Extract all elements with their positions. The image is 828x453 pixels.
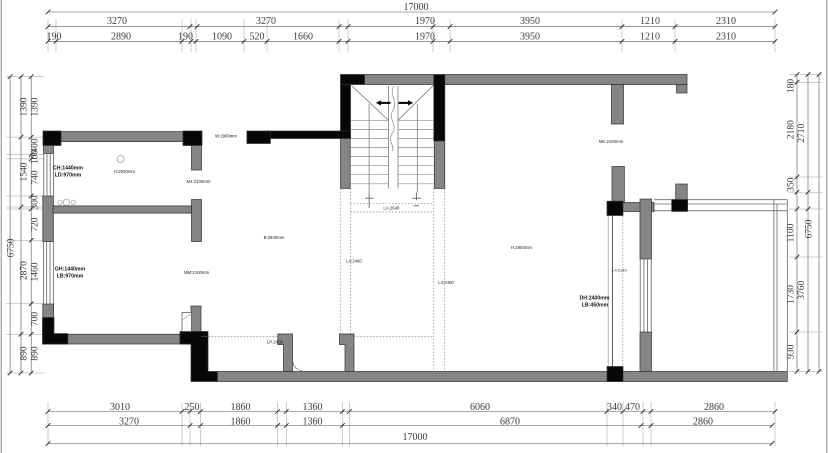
svg-text:1390: 1390 — [31, 97, 41, 116]
svg-text:1210: 1210 — [640, 32, 660, 43]
svg-text:L4:2140: L4:2140 — [612, 268, 627, 273]
svg-text:GH:1440mm: GH:1440mm — [55, 267, 86, 273]
svg-text:17000: 17000 — [403, 432, 428, 443]
svg-text:6870: 6870 — [500, 417, 520, 428]
svg-text:W:2900mm: W:2900mm — [215, 134, 237, 139]
svg-text:190: 190 — [47, 32, 62, 43]
svg-text:3950: 3950 — [520, 16, 540, 27]
svg-text:1360: 1360 — [303, 417, 323, 428]
svg-text:LB:970mm: LB:970mm — [57, 274, 84, 280]
svg-text:3270: 3270 — [107, 16, 127, 27]
svg-text:H:2800mm: H:2800mm — [511, 245, 532, 250]
svg-text:LD:970mm: LD:970mm — [55, 173, 82, 179]
svg-text:6750: 6750 — [805, 219, 815, 238]
svg-text:3270: 3270 — [119, 417, 139, 428]
svg-text:6750: 6750 — [7, 238, 17, 257]
svg-text:930: 930 — [787, 344, 797, 359]
svg-text:250: 250 — [185, 402, 200, 413]
svg-text:2870: 2870 — [20, 261, 30, 280]
svg-text:LA:2640: LA:2640 — [383, 206, 400, 211]
svg-text:DH:2400mm: DH:2400mm — [580, 296, 610, 302]
svg-text:L4:2460: L4:2460 — [346, 259, 362, 264]
svg-text:3010: 3010 — [110, 402, 130, 413]
svg-text:2890: 2890 — [111, 32, 131, 43]
svg-text:520: 520 — [250, 32, 265, 43]
svg-text:3950: 3950 — [520, 32, 540, 43]
svg-text:470: 470 — [625, 402, 640, 413]
svg-text:100: 100 — [31, 150, 41, 165]
svg-text:B:2930mm: B:2930mm — [264, 235, 285, 240]
svg-text:890: 890 — [20, 346, 30, 361]
svg-text:H:2930mm: H:2930mm — [114, 169, 135, 174]
svg-text:3270: 3270 — [256, 16, 276, 27]
svg-text:1100: 1100 — [787, 223, 797, 242]
svg-text:1970: 1970 — [415, 16, 435, 27]
svg-text:300: 300 — [31, 195, 41, 210]
svg-text:1860: 1860 — [231, 417, 251, 428]
svg-text:1360: 1360 — [303, 402, 323, 413]
svg-text:LP:2400: LP:2400 — [267, 340, 284, 345]
svg-text:LB:450mm: LB:450mm — [582, 303, 609, 309]
svg-text:2860: 2860 — [693, 417, 713, 428]
svg-text:1660: 1660 — [293, 32, 313, 43]
svg-text:190: 190 — [178, 32, 193, 43]
svg-text:1090: 1090 — [212, 32, 232, 43]
svg-text:CH:1440mm: CH:1440mm — [53, 166, 83, 172]
svg-text:1860: 1860 — [231, 402, 251, 413]
svg-text:L4:2400: L4:2400 — [438, 280, 454, 285]
svg-text:2310: 2310 — [716, 32, 736, 43]
svg-text:720: 720 — [31, 217, 41, 232]
svg-text:180: 180 — [787, 79, 797, 94]
svg-text:3760: 3760 — [797, 280, 807, 299]
svg-text:2310: 2310 — [716, 16, 736, 27]
svg-text:340: 340 — [607, 402, 622, 413]
svg-text:1210: 1210 — [640, 16, 660, 27]
svg-text:2860: 2860 — [704, 402, 724, 413]
svg-text:350: 350 — [787, 177, 797, 192]
svg-text:1970: 1970 — [415, 32, 435, 43]
svg-text:1460: 1460 — [31, 262, 41, 281]
svg-text:MM:2100mm: MM:2100mm — [184, 270, 209, 275]
svg-text:2710: 2710 — [797, 124, 807, 143]
svg-text:1540: 1540 — [20, 162, 30, 181]
svg-text:890: 890 — [31, 346, 41, 361]
svg-text:1730: 1730 — [787, 285, 797, 304]
svg-text:1390: 1390 — [20, 97, 30, 116]
svg-text:17000: 17000 — [404, 2, 429, 13]
svg-text:2180: 2180 — [787, 120, 797, 139]
svg-text:M4:2100mm: M4:2100mm — [187, 179, 211, 184]
svg-text:740: 740 — [31, 170, 41, 185]
svg-text:6060: 6060 — [470, 402, 490, 413]
svg-text:MK:2100mm: MK:2100mm — [599, 139, 624, 144]
svg-text:700: 700 — [31, 312, 41, 327]
